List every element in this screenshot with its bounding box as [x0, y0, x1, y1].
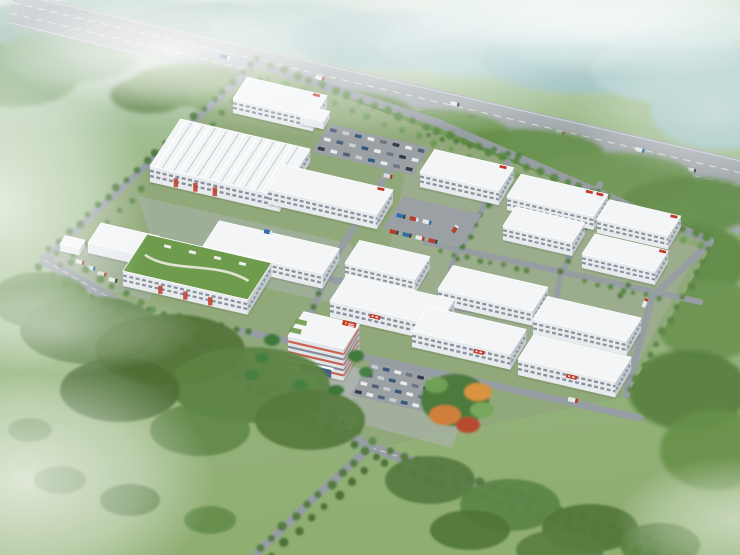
- tree: [514, 266, 519, 271]
- tree: [700, 259, 707, 266]
- tree: [621, 288, 627, 294]
- tree: [484, 149, 492, 157]
- tree: [430, 140, 437, 147]
- foreground-tree-cluster: [456, 417, 480, 433]
- foreground-tree-cluster: [359, 367, 373, 377]
- tree: [679, 294, 685, 300]
- tree: [381, 459, 389, 467]
- tree: [295, 527, 303, 535]
- tree: [673, 304, 680, 311]
- red-door: [183, 291, 187, 299]
- tree: [653, 341, 659, 347]
- foreground-tree-cluster: [328, 385, 344, 395]
- tree: [631, 290, 635, 294]
- tree: [706, 246, 712, 252]
- tree: [558, 269, 564, 275]
- tree: [234, 326, 240, 332]
- tree: [492, 147, 497, 152]
- tree: [268, 535, 275, 542]
- foreground-tree-cluster: [430, 510, 510, 550]
- red-door: [174, 178, 178, 187]
- tree: [608, 284, 613, 289]
- scene-container: [0, 0, 740, 555]
- tree: [477, 258, 483, 264]
- tree: [627, 387, 633, 393]
- tree: [360, 467, 368, 475]
- tree: [505, 151, 511, 157]
- tree: [316, 291, 321, 296]
- tree: [321, 503, 328, 510]
- red-door: [193, 183, 197, 192]
- tree: [524, 268, 530, 274]
- foreground-tree-cluster: [470, 402, 494, 418]
- tree: [451, 253, 456, 258]
- foreground-tree-cluster: [464, 383, 492, 401]
- foreground-tree-cluster: [429, 405, 461, 425]
- tree: [455, 257, 459, 261]
- tree: [335, 491, 344, 500]
- foreground-tree-cluster: [424, 377, 448, 393]
- tree: [277, 522, 286, 531]
- tree: [488, 261, 492, 265]
- tree: [448, 146, 453, 151]
- tree: [339, 469, 347, 477]
- tree: [656, 296, 661, 301]
- tree: [387, 447, 394, 454]
- tree: [515, 152, 521, 158]
- top-mist: [0, 0, 740, 130]
- tree: [566, 258, 571, 263]
- tree: [461, 139, 467, 145]
- foreground-tree-cluster: [255, 390, 365, 450]
- tree: [595, 283, 600, 288]
- tree: [658, 327, 666, 335]
- foreground-tree-cluster: [264, 334, 280, 346]
- tree: [667, 317, 674, 324]
- tree: [641, 362, 648, 369]
- tree: [501, 262, 506, 267]
- tree: [438, 249, 442, 253]
- tree: [625, 282, 630, 287]
- tree: [328, 480, 337, 489]
- tree: [478, 145, 483, 150]
- tree: [257, 544, 265, 552]
- tree: [467, 142, 473, 148]
- tree: [351, 441, 359, 449]
- tree: [440, 137, 445, 142]
- tree: [303, 501, 311, 509]
- industrial-park-aerial-render: [0, 0, 740, 555]
- tree: [292, 512, 300, 520]
- tree: [687, 282, 695, 290]
- tree: [632, 375, 640, 383]
- tree: [692, 229, 700, 237]
- tree: [311, 304, 317, 310]
- tree: [453, 138, 459, 144]
- foreground-tree-cluster: [348, 350, 364, 362]
- tree: [279, 538, 288, 547]
- foreground-tree-cluster: [385, 456, 475, 504]
- tree: [348, 478, 356, 486]
- tree: [373, 454, 380, 461]
- tree: [350, 459, 358, 467]
- tree: [582, 279, 586, 283]
- tree: [245, 328, 251, 334]
- red-door: [158, 286, 162, 294]
- tree: [647, 352, 654, 359]
- tree: [693, 269, 700, 276]
- tree: [523, 164, 530, 171]
- foreground-tree-cluster: [245, 370, 259, 380]
- tree: [308, 514, 316, 522]
- tree: [314, 491, 321, 498]
- foreground-tree-cluster: [255, 353, 269, 363]
- tree: [536, 167, 544, 175]
- tree: [702, 233, 711, 242]
- tree: [680, 237, 687, 244]
- tree: [368, 437, 376, 445]
- tree: [697, 242, 704, 249]
- red-door: [213, 187, 217, 196]
- tree: [361, 448, 368, 455]
- tree: [644, 292, 649, 297]
- red-door: [208, 297, 212, 305]
- tree: [464, 254, 469, 259]
- tree: [468, 234, 473, 239]
- foreground-tree-cluster: [292, 380, 308, 390]
